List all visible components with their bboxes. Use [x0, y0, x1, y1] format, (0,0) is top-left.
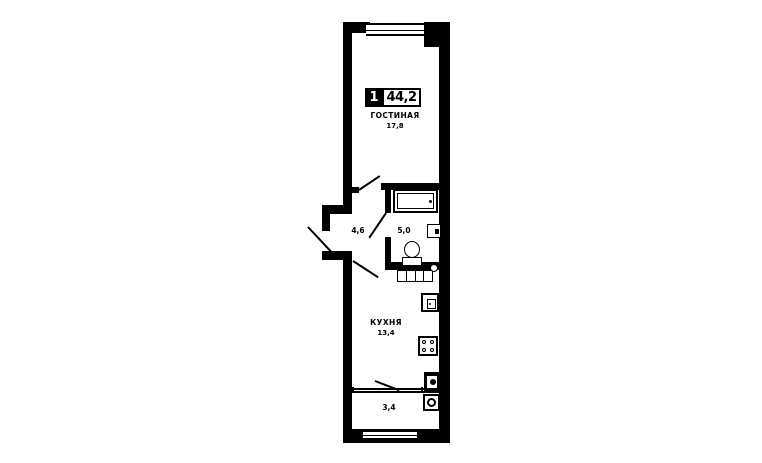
- counter-cabinet: [416, 271, 425, 281]
- living-room-door-leaf: [358, 175, 380, 191]
- sink-drain: [429, 303, 432, 306]
- wall-left-lower: [343, 251, 352, 443]
- balcony-partition-cap-right: [421, 387, 423, 393]
- kitchen-area: 13,4: [356, 330, 416, 338]
- balcony-partition-cap-left: [352, 387, 354, 393]
- badge-room-count-box: 1: [365, 88, 383, 107]
- living-room-area: 17,8: [350, 123, 440, 131]
- window-balcony-mullion-2: [363, 438, 417, 439]
- vent-shaft-block: [424, 372, 440, 393]
- balcony-partition-line-1: [352, 388, 424, 390]
- balcony-partition-line-2: [352, 391, 424, 393]
- bathroom-area: 5,0: [386, 227, 422, 235]
- toilet-tank: [402, 257, 422, 266]
- window-top-mullion: [366, 30, 424, 31]
- burner: [422, 348, 426, 352]
- washing-machine-drum: [427, 398, 436, 407]
- window-balcony: [363, 430, 417, 441]
- kitchen-counter-icon: [397, 270, 433, 282]
- wash-basin-icon: [427, 224, 441, 238]
- counter-cabinet: [407, 271, 416, 281]
- vent-shaft-icon: [426, 375, 438, 389]
- burner: [422, 340, 426, 344]
- window-top: [366, 23, 424, 36]
- bathtub-drain: [429, 200, 432, 203]
- floor-plan-canvas: 1 44,2 ГОСТИНАЯ 17,8 4,6 5,0 КУХНЯ 13,4 …: [0, 0, 762, 463]
- counter-cabinet: [424, 271, 432, 281]
- kitchen-name: КУХНЯ: [356, 319, 416, 327]
- wall-entry-nook-left: [322, 205, 330, 231]
- burner: [430, 348, 434, 352]
- living-room-name: ГОСТИНАЯ: [350, 112, 440, 120]
- hall-area: 4,6: [340, 227, 376, 235]
- burner: [430, 340, 434, 344]
- kitchen-door-leaf: [352, 260, 378, 278]
- wall-living-bottom-left: [349, 187, 359, 193]
- badge-area-box: 44,2: [382, 88, 421, 107]
- washing-machine-icon: [423, 394, 440, 411]
- stove-icon: [418, 336, 438, 356]
- kitchen-sink-unit-icon: [421, 293, 439, 312]
- wash-basin-tap: [435, 229, 439, 234]
- toilet-bowl: [404, 241, 420, 258]
- badge-total-area: 44,2: [384, 90, 419, 105]
- balcony-door-leaf: [375, 380, 400, 391]
- wall-bathroom-left-upper: [385, 190, 391, 213]
- balcony-area: 3,4: [371, 404, 407, 412]
- counter-cabinet: [398, 271, 407, 281]
- badge-room-count: 1: [365, 88, 383, 107]
- bathtub-icon: [393, 189, 438, 213]
- counter-sink-icon: [430, 264, 438, 272]
- vent-duct: [430, 379, 436, 385]
- toilet-icon: [402, 241, 422, 267]
- window-balcony-mullion-1: [363, 435, 417, 436]
